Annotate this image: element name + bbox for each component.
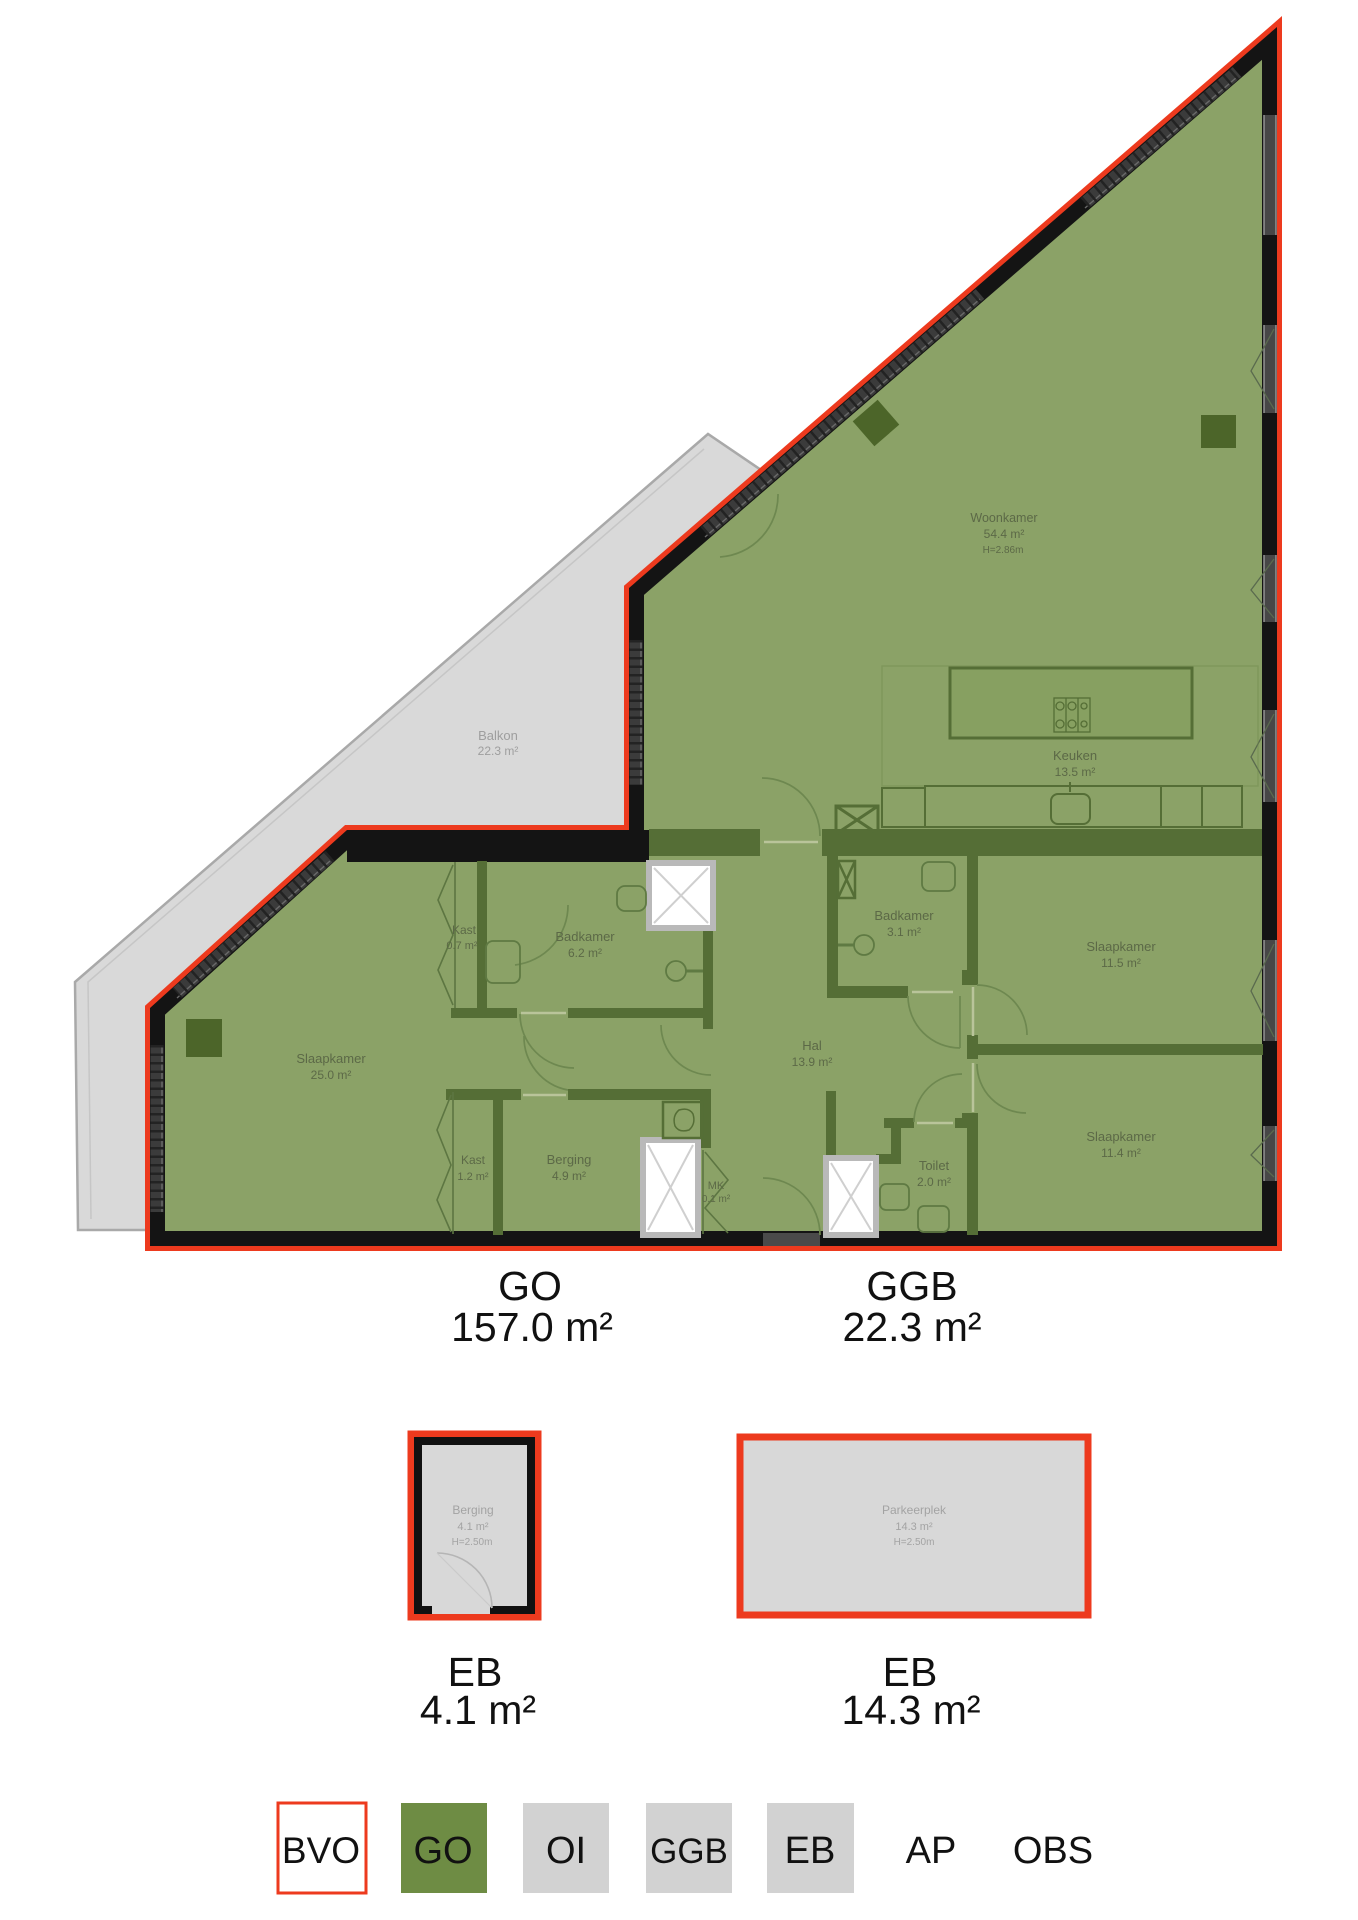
svg-text:Keuken: Keuken bbox=[1053, 748, 1097, 763]
svg-text:157.0 m²: 157.0 m² bbox=[451, 1304, 613, 1350]
svg-text:Parkeerplek: Parkeerplek bbox=[882, 1503, 947, 1517]
svg-text:Woonkamer: Woonkamer bbox=[970, 511, 1037, 525]
svg-text:11.4 m²: 11.4 m² bbox=[1101, 1146, 1141, 1160]
svg-text:25.0 m²: 25.0 m² bbox=[311, 1068, 352, 1082]
svg-text:Kast: Kast bbox=[452, 923, 477, 937]
svg-text:54.4 m²: 54.4 m² bbox=[984, 527, 1025, 541]
svg-text:Berging: Berging bbox=[547, 1152, 592, 1167]
svg-text:OBS: OBS bbox=[1013, 1830, 1093, 1872]
svg-text:Badkamer: Badkamer bbox=[874, 908, 934, 923]
svg-text:14.3 m²: 14.3 m² bbox=[895, 1521, 933, 1533]
svg-text:OI: OI bbox=[546, 1830, 586, 1872]
svg-text:6.2 m²: 6.2 m² bbox=[568, 946, 602, 960]
svg-text:13.9 m²: 13.9 m² bbox=[792, 1055, 833, 1069]
svg-text:11.5 m²: 11.5 m² bbox=[1101, 956, 1141, 970]
svg-text:Slaapkamer: Slaapkamer bbox=[296, 1051, 366, 1066]
svg-text:0.1 m²: 0.1 m² bbox=[702, 1194, 731, 1205]
svg-text:Slaapkamer: Slaapkamer bbox=[1086, 1129, 1156, 1144]
svg-text:3.1 m²: 3.1 m² bbox=[887, 925, 921, 939]
svg-text:13.5 m²: 13.5 m² bbox=[1055, 765, 1096, 779]
svg-text:EB: EB bbox=[785, 1830, 836, 1872]
svg-text:14.3 m²: 14.3 m² bbox=[842, 1687, 981, 1733]
svg-text:2.0 m²: 2.0 m² bbox=[917, 1175, 951, 1189]
svg-text:Balkon: Balkon bbox=[478, 728, 518, 743]
svg-text:22.3 m²: 22.3 m² bbox=[843, 1304, 982, 1350]
svg-text:H=2.50m: H=2.50m bbox=[452, 1537, 493, 1548]
svg-text:Toilet: Toilet bbox=[919, 1158, 950, 1173]
svg-text:22.3 m²: 22.3 m² bbox=[478, 744, 519, 758]
svg-text:H=2.86m: H=2.86m bbox=[983, 545, 1024, 556]
svg-text:GO: GO bbox=[413, 1830, 472, 1872]
svg-text:4.1 m²: 4.1 m² bbox=[457, 1521, 489, 1533]
svg-text:Berging: Berging bbox=[452, 1503, 493, 1517]
svg-text:H=2.50m: H=2.50m bbox=[894, 1537, 935, 1548]
svg-text:AP: AP bbox=[906, 1830, 957, 1872]
svg-text:BVO: BVO bbox=[282, 1830, 360, 1871]
svg-text:Hal: Hal bbox=[802, 1038, 822, 1053]
svg-text:0.7 m²: 0.7 m² bbox=[446, 940, 478, 952]
svg-text:1.2 m²: 1.2 m² bbox=[457, 1171, 489, 1183]
svg-text:Slaapkamer: Slaapkamer bbox=[1086, 939, 1156, 954]
svg-text:4.9 m²: 4.9 m² bbox=[552, 1169, 586, 1183]
svg-text:Kast: Kast bbox=[461, 1153, 486, 1167]
svg-text:4.1 m²: 4.1 m² bbox=[420, 1687, 536, 1733]
svg-text:GO: GO bbox=[498, 1263, 562, 1309]
svg-text:MK: MK bbox=[708, 1180, 725, 1192]
svg-text:Badkamer: Badkamer bbox=[555, 929, 615, 944]
svg-text:GGB: GGB bbox=[650, 1832, 728, 1871]
svg-text:GGB: GGB bbox=[866, 1263, 957, 1309]
